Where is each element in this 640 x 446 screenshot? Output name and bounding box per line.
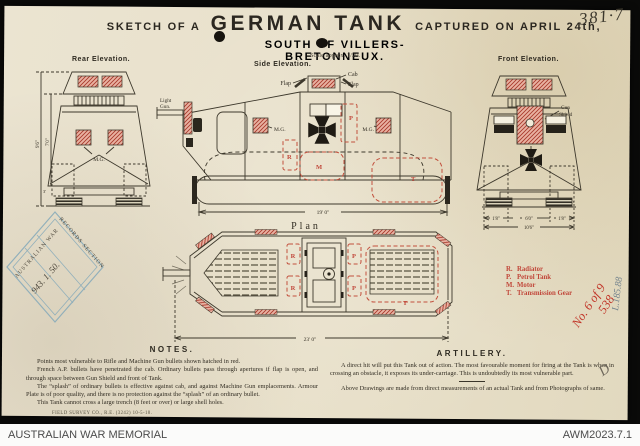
side-zone-m: M [316, 164, 322, 171]
legend-key: T. [506, 290, 517, 298]
plan-zone-p1: P [352, 253, 356, 260]
plan-zone-p2: P [352, 285, 356, 292]
notes-paragraph: This Tank cannot cross a large trench (8… [26, 399, 318, 407]
stamp-handwritten-number: 943. 1. 50. [29, 260, 62, 295]
front-elevation-drawing: Gun Shield 1'8" 6'0" 1'8" 10'6" [470, 66, 600, 236]
legend-item: T.Transmission Gear [506, 290, 572, 298]
plan-label: Plan [291, 221, 321, 232]
artillery-section: ARTILLERY. A direct hit will put this Ta… [330, 349, 614, 393]
side-mg-left-label: M.G. [274, 127, 286, 133]
rear-elevation-label: Rear Elevation. [72, 56, 130, 63]
front-elevation-label: Front Elevation. [498, 56, 559, 63]
side-flap-left-label: Flap [280, 81, 291, 87]
archive-accession-number: AWM2023.7.1 [563, 429, 632, 441]
side-light-gun-label-2: Gun. [160, 104, 170, 110]
notes-title: NOTES. [26, 345, 318, 355]
legend-label: Transmission Gear [517, 290, 572, 297]
red-legend: R.Radiator P.Petrol Tank M.Motor T.Trans… [506, 266, 572, 298]
notes-paragraph: The “splash” of ordinary bullets is effe… [26, 383, 318, 399]
legend-label: Petrol Tank [517, 274, 551, 281]
legend-key: R. [506, 266, 517, 274]
rear-elevation-drawing: M.G. 9'6" 7'0" 3' [34, 68, 164, 213]
plan-dim-length: 23' 0" [304, 337, 317, 343]
side-flap-right-label: Flap [348, 82, 359, 88]
legend-key: P. [506, 274, 517, 282]
title-suffix: CAPTURED ON APRIL 24th, [415, 21, 601, 33]
plan-zone-t: T [403, 300, 408, 307]
front-gun-shield-label-2: Shield [559, 112, 573, 118]
side-elevation-label: Side Elevation. [254, 61, 311, 68]
side-cab-label: Cab [348, 72, 358, 78]
printer-imprint: FIELD SURVEY CO., R.E. (3242) 10-5-18. [52, 411, 318, 417]
divider-rule [459, 381, 485, 382]
side-zone-r: R [287, 154, 292, 161]
rear-mg-label: M.G. [93, 157, 105, 163]
front-gun-shield-label-1: Gun [561, 105, 570, 111]
front-dim-left: 1'8" [492, 217, 500, 222]
notes-section: NOTES. Points most vulnerable to Rifle a… [26, 345, 318, 417]
rear-dim-body: 7'0" [46, 138, 51, 146]
legend-label: Motor [517, 282, 536, 289]
plan-drawing: R R P P T Plan 23' 0" [160, 220, 460, 352]
document-content: SKETCH OF A GERMAN TANK CAPTURED ON APRI… [0, 0, 640, 446]
title-prefix: SKETCH OF A [107, 21, 201, 33]
scanned-document-photo: SKETCH OF A GERMAN TANK CAPTURED ON APRI… [0, 0, 640, 446]
stamp-text-bottom: RECORDS SECTION [57, 216, 105, 270]
artillery-paragraph: A direct hit will put this Tank out of a… [330, 362, 614, 378]
war-records-section-stamp: AUSTRALIAN WAR RECORDS SECTION 943. 1. 5… [5, 210, 105, 325]
side-zone-t: T [411, 176, 416, 183]
front-dim-mid: 6'0" [525, 217, 533, 222]
ink-blot [316, 38, 328, 48]
side-elevation-drawing: Flap Cab Flap Light Gun. M.G. M.G. P R M… [155, 68, 465, 218]
rear-dim-overall: 9'6" [36, 140, 41, 148]
legend-label: Radiator [517, 266, 543, 273]
plan-zone-r2: R [291, 285, 296, 292]
side-dim-length: 19' 0" [317, 210, 330, 216]
handwritten-registry-number: 381·7 [578, 4, 626, 29]
notes-paragraph: French A.P. bullets have penetrated the … [26, 366, 318, 382]
iron-cross-icon [520, 149, 542, 171]
rear-dim-bottom: 3' [43, 189, 46, 194]
legend-item: R.Radiator [506, 266, 572, 274]
scale-note: Scale approx. 1/20. [280, 52, 390, 59]
archive-institution: AUSTRALIAN WAR MEMORIAL [8, 429, 167, 441]
legend-item: P.Petrol Tank [506, 274, 572, 282]
legend-key: M. [506, 282, 517, 290]
notes-paragraph: Points most vulnerable to Rifle and Mach… [26, 358, 318, 366]
front-dim-right: 1'8" [558, 217, 566, 222]
ink-blot [214, 31, 225, 42]
archive-footer-bar: AUSTRALIAN WAR MEMORIAL AWM2023.7.1 [0, 424, 640, 446]
side-mg-right-label: M.G. [362, 127, 374, 133]
document-title: SKETCH OF A GERMAN TANK CAPTURED ON APRI… [128, 12, 580, 36]
legend-item: M.Motor [506, 282, 572, 290]
side-zone-p: P [349, 115, 353, 122]
title-main: GERMAN TANK [211, 12, 405, 36]
artillery-title: ARTILLERY. [330, 349, 614, 359]
front-dim-total: 10'6" [524, 226, 534, 231]
iron-cross-icon [308, 116, 336, 144]
plan-zone-r1: R [291, 253, 296, 260]
title-line2: SOUTH OF VILLERS-BRETONNEUX. [215, 39, 455, 63]
artillery-paragraph: Above Drawings are made from direct meas… [330, 385, 614, 393]
